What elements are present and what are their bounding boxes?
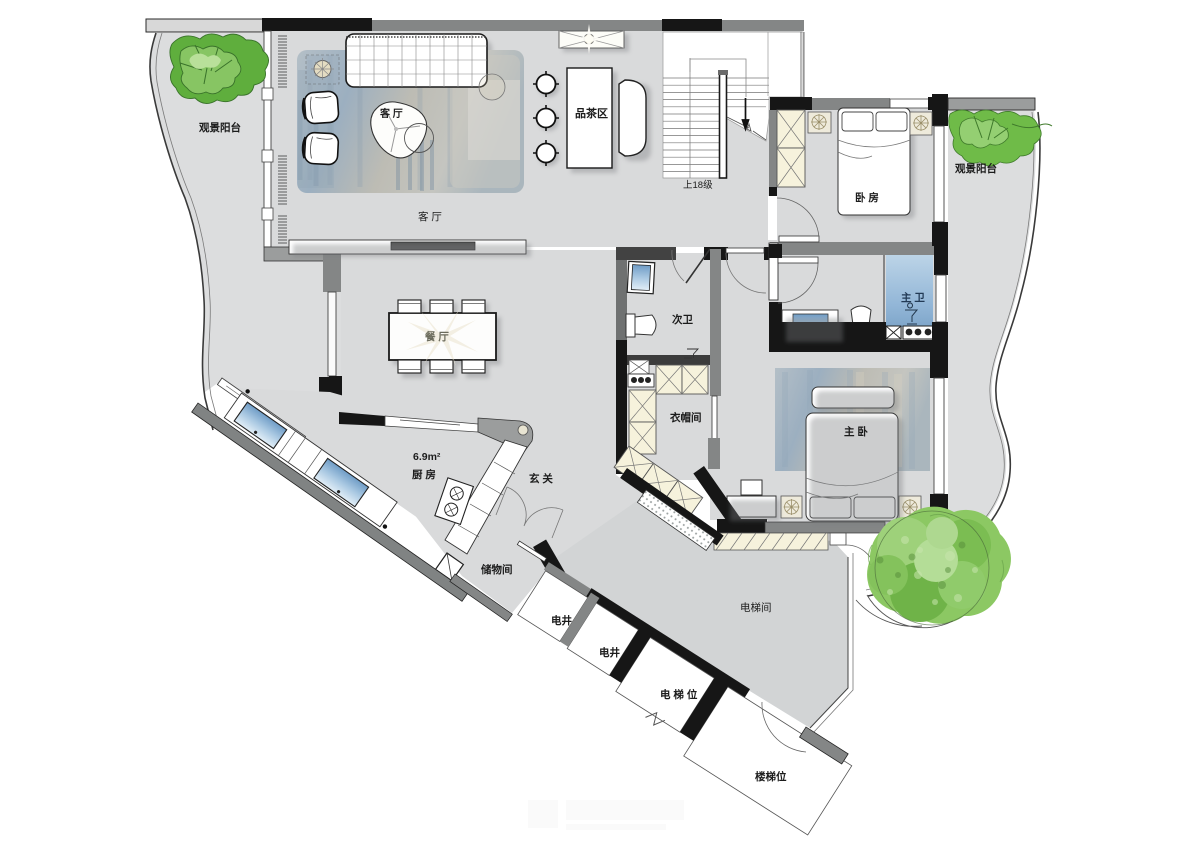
svg-text:衣帽间: 衣帽间 <box>670 411 702 424</box>
svg-text:观景阳台: 观景阳台 <box>199 121 241 134</box>
svg-text:厨 房: 厨 房 <box>412 468 436 481</box>
svg-text:品茶区: 品茶区 <box>575 106 608 120</box>
svg-text:主 卧: 主 卧 <box>844 425 868 438</box>
svg-text:6.9m²: 6.9m² <box>413 451 441 463</box>
svg-text:观景阳台: 观景阳台 <box>955 162 997 175</box>
svg-text:电 梯 位: 电 梯 位 <box>660 688 698 701</box>
svg-text:主 卫: 主 卫 <box>901 291 925 304</box>
svg-text:楼梯位: 楼梯位 <box>755 770 787 783</box>
svg-text:上18级: 上18级 <box>683 179 713 191</box>
svg-text:储物间: 储物间 <box>481 563 513 576</box>
svg-text:次卫: 次卫 <box>672 313 693 326</box>
svg-text:客 厅: 客 厅 <box>418 210 442 223</box>
svg-text:电梯间: 电梯间 <box>740 601 772 614</box>
svg-text:玄 关: 玄 关 <box>529 472 553 485</box>
svg-text:客 厅: 客 厅 <box>379 107 403 120</box>
svg-text:电井: 电井 <box>599 646 620 659</box>
svg-text:餐 厅: 餐 厅 <box>424 330 449 343</box>
svg-text:电井: 电井 <box>551 614 572 627</box>
svg-text:卧 房: 卧 房 <box>855 191 879 204</box>
